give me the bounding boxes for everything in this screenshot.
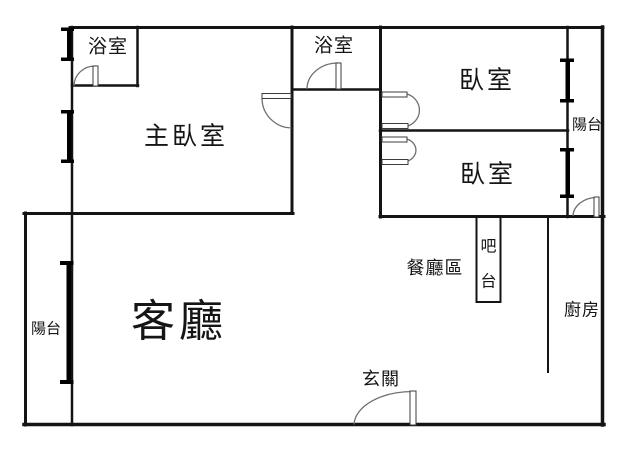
window-master-a-cap-bottom: [61, 58, 74, 62]
door-arc-bath1: [74, 66, 96, 86]
window-master-b-cap-top: [61, 110, 74, 114]
room-label-bathroom-left: 浴室: [88, 38, 128, 57]
door-leaf-bedroom-bottom-a: [382, 137, 407, 142]
room-label-living-room: 客廳: [131, 300, 227, 344]
room-label-kitchen: 廚房: [564, 302, 600, 319]
window-bedroom-bottom-cap-bottom: [560, 195, 574, 199]
window-bedroom-top-cap-top: [560, 59, 574, 63]
floor-plan-drawing: [0, 0, 640, 476]
walls-group: [24, 27, 604, 425]
window-bedroom-top-cap-bottom: [560, 99, 574, 103]
door-arc-bedroom-bottom: [407, 139, 416, 161]
door-arc-balcony: [573, 198, 597, 217]
room-label-dining-area: 餐廳區: [407, 259, 464, 277]
window-bedroom-top: [566, 61, 571, 101]
room-label-bar-counter: 吧 台: [480, 240, 497, 291]
door-arc-master: [262, 99, 292, 129]
window-living: [67, 264, 72, 382]
doors-group: [74, 63, 599, 425]
floor-plan-canvas: 浴室 浴室 主臥室 臥室 臥室 陽台 陽台 客廳 餐廳區 吧 台 廚房 玄關: [0, 0, 640, 476]
door-leaf-bath1: [93, 66, 98, 86]
door-arc-entrance: [354, 392, 413, 425]
door-arc-bath2: [307, 63, 339, 89]
window-master-a-cap-top: [61, 28, 74, 32]
door-arc-bedroom-top: [407, 94, 419, 126]
door-leaf-entrance: [410, 391, 416, 425]
window-living-cap-bottom: [60, 380, 74, 384]
room-label-bathroom-middle: 浴室: [314, 37, 354, 56]
door-leaf-bedroom-bottom-b: [382, 160, 408, 165]
room-label-bedroom-top: 臥室: [459, 69, 515, 94]
window-bedroom-bottom-cap-top: [560, 148, 574, 152]
window-living-cap-top: [60, 261, 74, 265]
window-master-a: [67, 29, 72, 60]
bar-counter-char-2: 台: [480, 275, 497, 291]
room-label-balcony-left: 陽台: [31, 322, 61, 337]
door-leaf-master: [262, 94, 291, 99]
window-master-b-cap-bottom: [61, 160, 74, 164]
window-bedroom-bottom: [566, 151, 571, 196]
door-leaf-bedroom-top-b: [382, 124, 408, 129]
room-label-balcony-right: 陽台: [572, 118, 602, 133]
room-label-entrance: 玄關: [362, 370, 400, 388]
door-leaf-bath2: [336, 63, 341, 89]
door-leaf-bedroom-top-a: [382, 92, 407, 97]
room-label-bedroom-bottom: 臥室: [460, 163, 516, 188]
bar-counter-char-1: 吧: [480, 240, 497, 256]
door-leaf-balcony: [594, 197, 599, 217]
window-master-b: [67, 113, 72, 161]
room-label-master-bedroom: 主臥室: [144, 125, 228, 150]
